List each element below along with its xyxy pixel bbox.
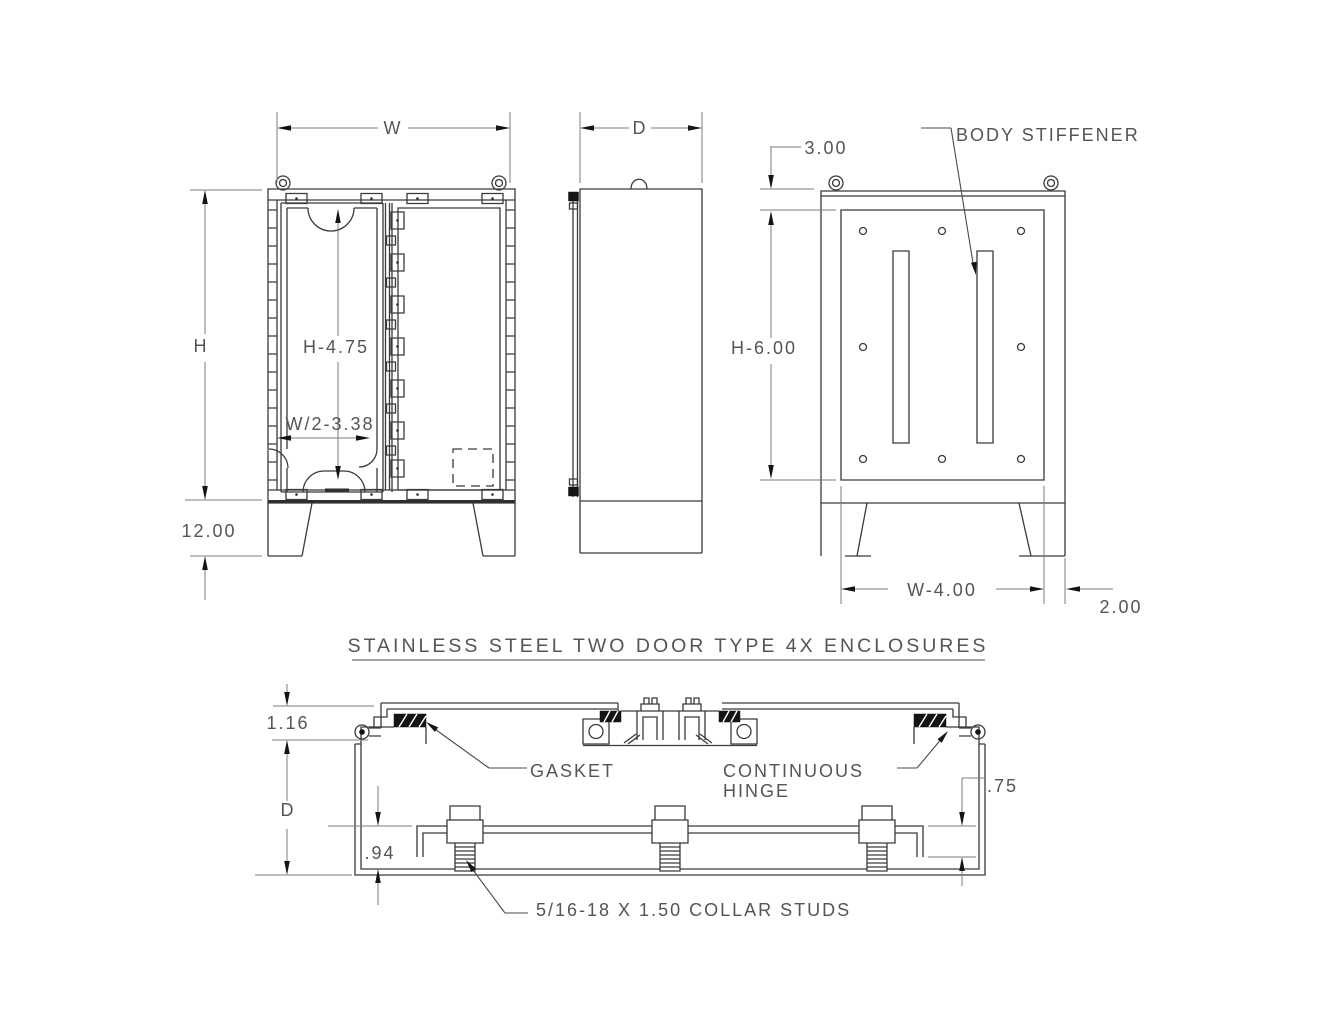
rear-dimension-lines [760,147,1113,604]
lifting-eye-rear-left-inner [833,180,840,187]
latch-hole-left [589,725,603,739]
front-leg-height-dim: 12.00 [181,521,236,541]
latch-hole-right [737,725,751,739]
mounting-hole [1018,344,1025,351]
mounting-hole [939,228,946,235]
drawing-title: STAINLESS STEEL TWO DOOR TYPE 4X ENCLOSU… [348,635,989,657]
gasket-hatching [399,711,946,727]
side-body-outline [573,179,702,553]
lifting-eye-right-inner [496,180,503,187]
section-depth-dim: D [281,800,296,820]
rear-top-offset-dim: 3.00 [804,138,847,158]
mounting-hole [939,456,946,463]
drawing-sheet: W H H-4.75 W/2-3.38 12.00 D BODY STIFFEN… [0,0,1320,1020]
front-legs [268,503,515,556]
section-panel-clearance-dim: .75 [987,776,1018,796]
gasket-callout: GASKET [530,761,615,781]
mounting-hole [860,456,867,463]
lifting-eye-rear-left [829,176,843,190]
lifting-eye-rear-right [1044,176,1058,190]
rear-cover-height-dim: H-6.00 [731,338,797,358]
section-view: 1.16 D .94 .75 GASKET CONTINUOUS HINGE 5… [255,684,1018,920]
gasket-strips [394,711,946,727]
front-width-dim: W [384,118,403,138]
front-view: W H H-4.75 W/2-3.38 12.00 [181,112,515,600]
mounting-hole [1018,456,1025,463]
front-height-dim: H [194,336,209,356]
rear-view: BODY STIFFENER 3.00 H-6.00 W-4.00 2.00 [731,125,1143,617]
front-data-pocket [453,449,493,486]
rear-arrowheads [768,175,1080,592]
collar-stud-bodies [447,806,895,871]
hinge-pin-left-center [359,729,364,734]
front-panel-width-dim: W/2-3.38 [285,414,374,434]
lifting-eye-left [276,176,290,190]
section-flange-depth-dim: 1.16 [266,713,309,733]
drawing-title-block: STAINLESS STEEL TWO DOOR TYPE 4X ENCLOSU… [348,635,989,660]
lifting-eye-right [492,176,506,190]
lifting-eye-left-inner [280,180,287,187]
hinge-callout-line2: HINGE [723,781,790,801]
hinge-pin-right-center [975,729,980,734]
rear-leg-spacing-dim: W-4.00 [907,580,977,600]
side-view: D [569,112,703,553]
rear-stiffener-callout: BODY STIFFENER [956,125,1140,145]
rear-legs [821,503,1065,556]
technical-drawing-canvas: W H H-4.75 W/2-3.38 12.00 D BODY STIFFEN… [0,0,1320,1020]
stud-callout: 5/16-18 X 1.50 COLLAR STUDS [536,900,851,920]
stiffener-leader-line [921,128,974,269]
lifting-eye-rear-right-inner [1048,180,1055,187]
hinge-callout-line1: CONTINUOUS [723,761,864,781]
section-panel-standoff-dim: .94 [364,843,395,863]
side-depth-dim: D [633,118,648,138]
front-panel-height-dim: H-4.75 [303,337,369,357]
mounting-hole [860,344,867,351]
rear-leg-inset-dim: 2.00 [1099,597,1142,617]
mounting-hole [1018,228,1025,235]
mounting-hole [860,228,867,235]
